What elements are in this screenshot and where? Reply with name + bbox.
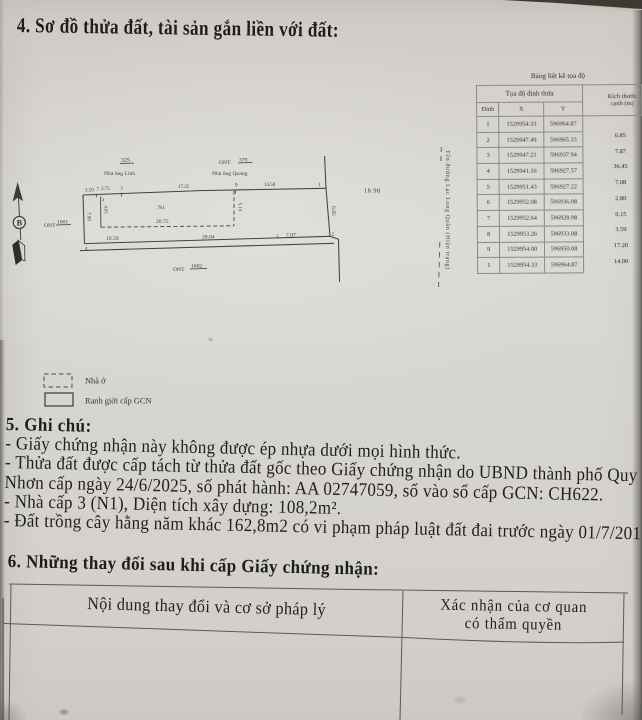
svg-text:3.50: 3.50 xyxy=(85,189,94,194)
svg-text:5.10: 5.10 xyxy=(237,203,242,212)
svg-text:Nhà ở: Nhà ở xyxy=(85,377,106,386)
svg-text:20.75: 20.75 xyxy=(156,219,169,225)
svg-text:1: 1 xyxy=(318,183,321,188)
svg-text:N1: N1 xyxy=(158,205,165,211)
svg-text:4: 4 xyxy=(102,197,105,202)
svg-text:3: 3 xyxy=(276,235,279,240)
svg-text:5: 5 xyxy=(121,186,124,191)
svg-text:9: 9 xyxy=(235,184,238,189)
svg-text:14.58: 14.58 xyxy=(264,183,276,188)
svg-text:7.07: 7.07 xyxy=(286,233,296,239)
svg-text:Tên đường Lạc Long Quân (Hiện: Tên đường Lạc Long Quân (Hiện trạng) xyxy=(444,150,451,270)
svg-text:3.75: 3.75 xyxy=(101,187,110,192)
svg-text:ONT: ONT xyxy=(219,160,231,166)
svg-text:19.59: 19.59 xyxy=(106,236,119,242)
svg-text:17.25: 17.25 xyxy=(178,185,190,190)
svg-text:4: 4 xyxy=(85,247,88,252)
svg-text:4.05: 4.05 xyxy=(104,206,109,215)
svg-text:ONT: ONT xyxy=(173,267,185,273)
svg-text:18.98: 18.98 xyxy=(364,188,381,195)
svg-text:ONT: ONT xyxy=(44,223,56,229)
svg-text:7: 7 xyxy=(97,188,100,193)
svg-text:28.04: 28.04 xyxy=(202,235,215,241)
svg-text:7.08: 7.08 xyxy=(86,212,91,221)
svg-text:6.85: 6.85 xyxy=(330,206,336,216)
svg-text:Nhà ông Linh: Nhà ông Linh xyxy=(104,171,135,177)
svg-text:Nhà ông Quang: Nhà ông Quang xyxy=(212,171,248,177)
svg-text:Ranh giới cấp GCN: Ranh giới cấp GCN xyxy=(85,397,152,406)
svg-text:B: B xyxy=(16,218,22,228)
